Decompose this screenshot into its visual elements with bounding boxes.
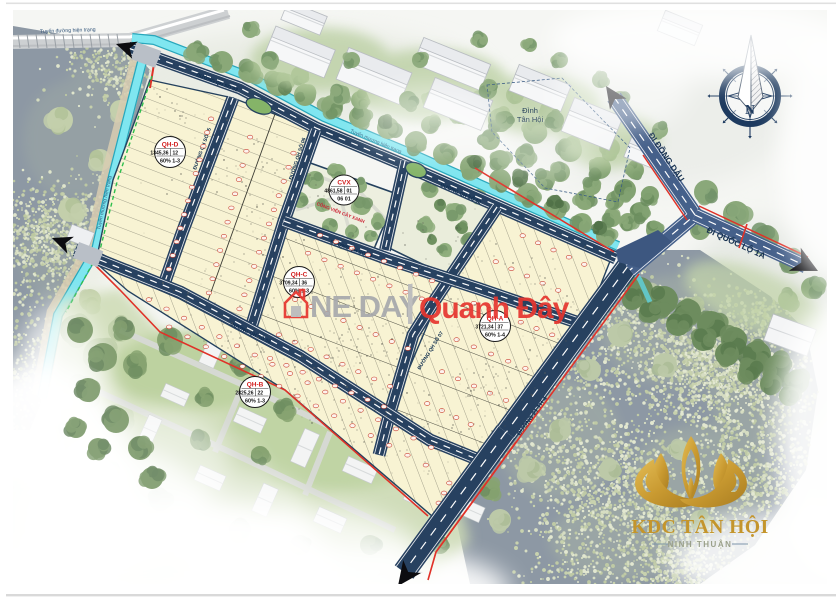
svg-text:01: 01: [347, 189, 353, 195]
svg-text:3721,34: 3721,34: [475, 325, 493, 331]
svg-text:06 01: 06 01: [337, 197, 351, 203]
svg-text:Đình: Đình: [522, 106, 538, 115]
svg-text:3709,34: 3709,34: [279, 281, 297, 287]
svg-text:KDC TÂN HỘI: KDC TÂN HỘI: [631, 516, 768, 538]
svg-text:CVX: CVX: [337, 180, 351, 187]
svg-text:22: 22: [258, 391, 264, 397]
svg-text:NINH THUẬN: NINH THUẬN: [668, 540, 733, 549]
svg-text:60% 1-3: 60% 1-3: [245, 399, 265, 405]
svg-text:60% 1-3: 60% 1-3: [160, 159, 180, 165]
svg-text:36: 36: [302, 281, 308, 287]
svg-text:4861,58: 4861,58: [324, 189, 342, 195]
svg-text:37: 37: [498, 325, 504, 331]
svg-text:QH-C: QH-C: [291, 272, 308, 279]
svg-text:Quanh Đây: Quanh Đây: [419, 292, 570, 325]
svg-text:QH-B: QH-B: [247, 382, 264, 389]
svg-text:60% 1-4: 60% 1-4: [485, 333, 505, 339]
svg-text:1345,36: 1345,36: [150, 151, 168, 157]
svg-text:2825,26: 2825,26: [235, 391, 253, 397]
svg-text:NE DAY: NE DAY: [310, 289, 420, 324]
svg-text:N: N: [745, 102, 755, 117]
svg-text:QH-D: QH-D: [162, 142, 179, 149]
svg-text:12: 12: [173, 151, 179, 157]
